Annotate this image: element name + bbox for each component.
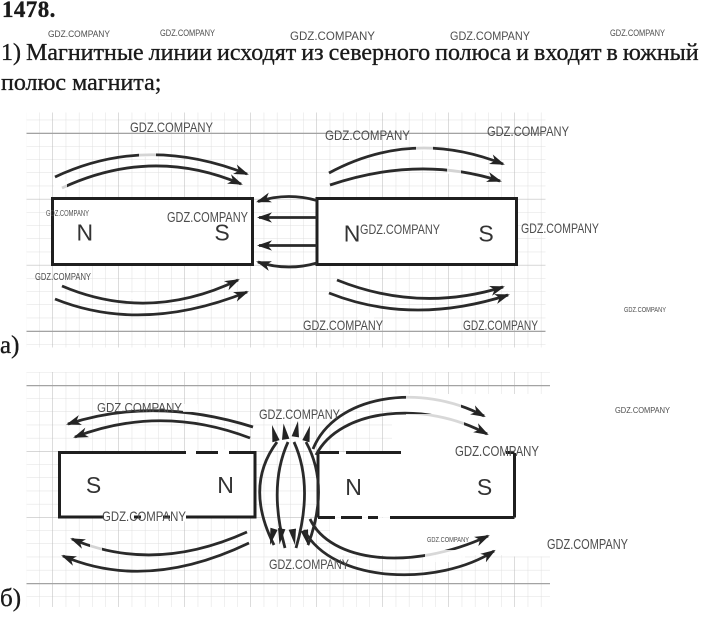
svg-text:GDZ.COMPANY: GDZ.COMPANY [48,29,110,39]
svg-text:GDZ.COMPANY: GDZ.COMPANY [46,209,89,218]
svg-text:GDZ.COMPANY: GDZ.COMPANY [35,272,91,283]
svg-text:GDZ.COMPANY: GDZ.COMPANY [463,317,538,333]
svg-text:GDZ.COMPANY: GDZ.COMPANY [160,28,215,38]
svg-text:GDZ.COMPANY: GDZ.COMPANY [615,406,671,415]
svg-text:GDZ.COMPANY: GDZ.COMPANY [130,119,214,135]
svg-text:GDZ.COMPANY: GDZ.COMPANY [487,123,570,139]
svg-text:GDZ.COMPANY: GDZ.COMPANY [455,443,539,460]
svg-text:S: S [86,472,101,498]
svg-text:GDZ.COMPANY: GDZ.COMPANY [259,406,341,422]
svg-text:GDZ.COMPANY: GDZ.COMPANY [97,400,182,415]
svg-text:GDZ.COMPANY: GDZ.COMPANY [610,28,665,38]
svg-text:S: S [478,221,493,247]
svg-text:N: N [217,472,234,498]
svg-text:GDZ.COMPANY: GDZ.COMPANY [303,317,384,333]
svg-text:GDZ.COMPANY: GDZ.COMPANY [269,556,350,572]
svg-text:GDZ.COMPANY: GDZ.COMPANY [427,537,469,544]
svg-text:GDZ.COMPANY: GDZ.COMPANY [325,127,411,143]
svg-text:GDZ.COMPANY: GDZ.COMPANY [167,209,248,226]
svg-text:GDZ.COMPANY: GDZ.COMPANY [102,508,187,524]
svg-text:GDZ.COMPANY: GDZ.COMPANY [547,536,628,553]
svg-text:N: N [344,221,361,247]
svg-text:GDZ.COMPANY: GDZ.COMPANY [521,220,599,236]
svg-text:N: N [76,220,93,246]
svg-text:GDZ.COMPANY: GDZ.COMPANY [624,307,666,314]
svg-text:GDZ.COMPANY: GDZ.COMPANY [360,221,441,237]
svg-text:S: S [477,474,492,500]
svg-text:N: N [345,474,362,500]
